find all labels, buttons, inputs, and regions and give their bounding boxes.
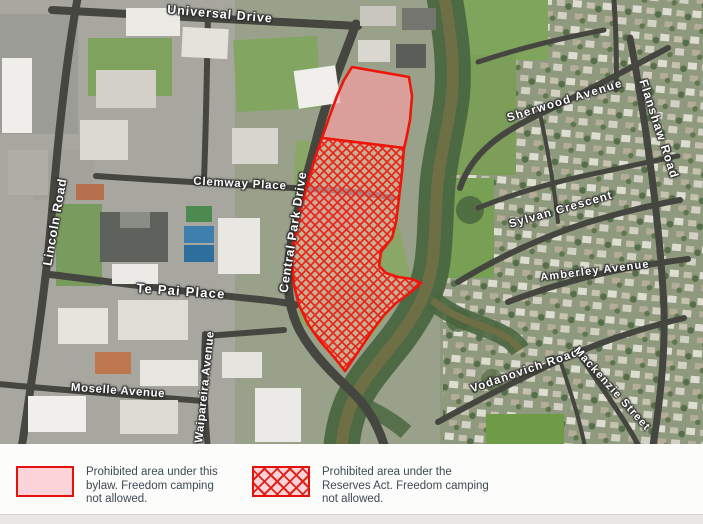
legend: Prohibited area under this bylaw. Freedo…	[0, 444, 703, 514]
legend-item-bylaw: Prohibited area under this bylaw. Freedo…	[16, 466, 228, 507]
legend-item-reserves-act: Prohibited area under the Reserves Act. …	[252, 466, 490, 507]
satellite-imagery	[0, 0, 703, 444]
legend-swatch-solid-pink	[16, 466, 74, 497]
legend-label-reserves-act: Prohibited area under the Reserves Act. …	[322, 466, 490, 507]
freedom-camping-map-figure: Universal DriveLincoln RoadClemway Place…	[0, 0, 703, 524]
legend-swatch-crosshatch	[252, 466, 310, 497]
satellite-map: Universal DriveLincoln RoadClemway Place…	[0, 0, 703, 444]
footer-strip	[0, 514, 703, 524]
legend-label-bylaw: Prohibited area under this bylaw. Freedo…	[86, 466, 228, 507]
